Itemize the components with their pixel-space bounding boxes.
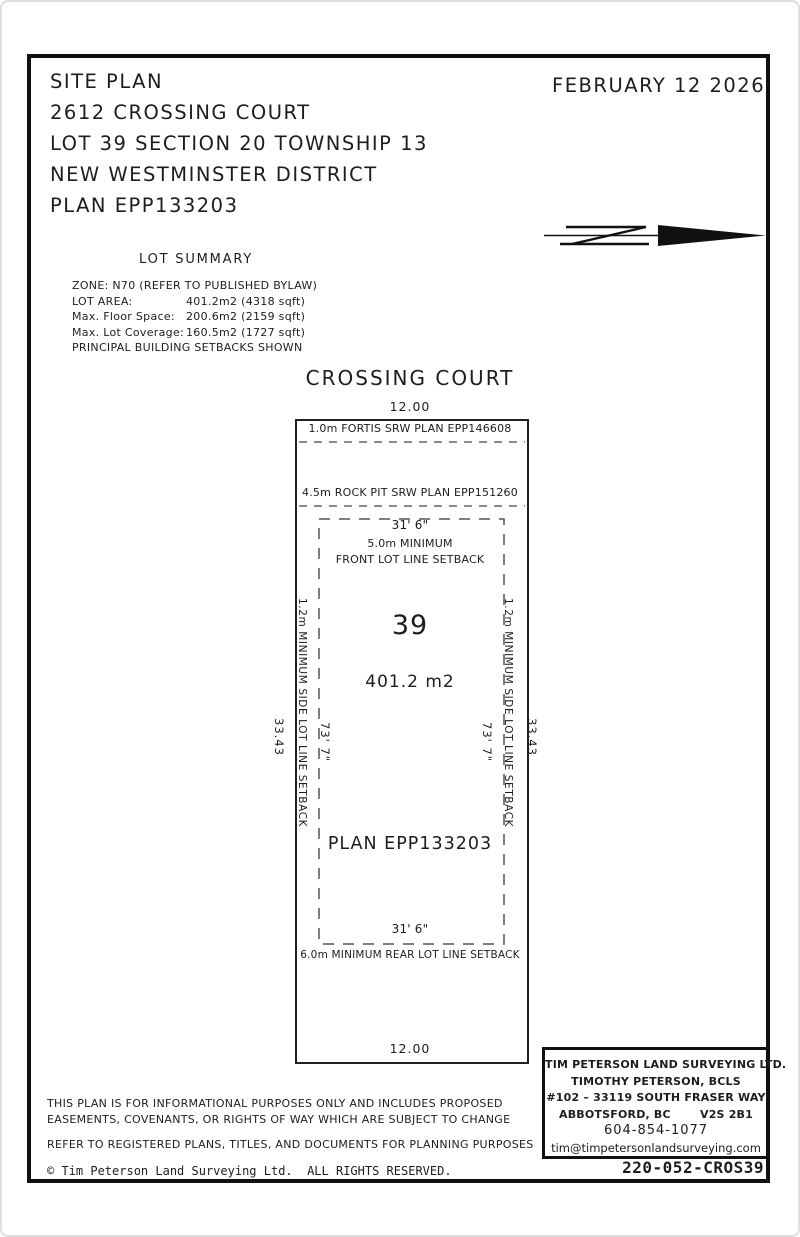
rear-setback-width: 31' 6" (295, 922, 525, 936)
floor-space-value: 200.6m2 (2159 sqft) (186, 310, 305, 323)
front-setback-label-line1: 5.0m MINIMUM (295, 537, 525, 550)
right-setback-depth: 73' 7" (480, 722, 494, 762)
lot-area-label: LOT AREA: (72, 294, 186, 310)
surveyor-postal: V2S 2B1 (700, 1107, 753, 1124)
disclaimer-line1: THIS PLAN IS FOR INFORMATIONAL PURPOSES … (47, 1096, 534, 1112)
left-setback-depth: 73' 7" (318, 722, 332, 762)
lot-summary: ZONE: N70 (REFER TO PUBLISHED BYLAW) LOT… (72, 278, 317, 356)
lot-summary-row: LOT AREA:401.2m2 (4318 sqft) (72, 294, 317, 310)
fortis-srw-label: 1.0m FORTIS SRW PLAN EPP146608 (295, 422, 525, 435)
disclaimer-line3: REFER TO REGISTERED PLANS, TITLES, AND D… (47, 1137, 534, 1153)
lot-coverage-label: Max. Lot Coverage: (72, 325, 186, 341)
lot-summary-row: Max. Floor Space:200.6m2 (2159 sqft) (72, 309, 317, 325)
lot-area-value: 401.2m2 (4318 sqft) (186, 295, 305, 308)
surveyor-info-box: TIM PETERSON LAND SURVEYING LTD. TIMOTHY… (542, 1047, 770, 1159)
address-line: 2612 CROSSING COURT (50, 97, 428, 128)
site-plan-page: SITE PLAN 2612 CROSSING COURT LOT 39 SEC… (0, 0, 800, 1237)
surveyor-company: TIM PETERSON LAND SURVEYING LTD. (545, 1057, 767, 1074)
lot-summary-row: Max. Lot Coverage:160.5m2 (1727 sqft) (72, 325, 317, 341)
floor-space-label: Max. Floor Space: (72, 309, 186, 325)
front-setback-label-line2: FRONT LOT LINE SETBACK (295, 553, 525, 566)
surveyor-city-postal: ABBOTSFORD, BC V2S 2B1 (545, 1107, 767, 1124)
page-title: SITE PLAN (50, 66, 428, 97)
surveyor-email: tim@timpetersonlandsurveying.com (545, 1140, 767, 1157)
lot-coverage-value: 160.5m2 (1727 sqft) (186, 326, 305, 339)
front-setback-width: 31' 6" (295, 518, 525, 532)
left-side-dimension: 33.43 (272, 718, 286, 756)
lot-summary-heading: LOT SUMMARY (139, 252, 253, 267)
left-side-setback-label: 1.2m MINIMUM SIDE LOT LINE SETBACK (296, 598, 308, 827)
plan-date: FEBRUARY 12 2026 (552, 74, 765, 97)
surveyor-address: #102 – 33119 SOUTH FRASER WAY (545, 1090, 767, 1107)
title-block: SITE PLAN 2612 CROSSING COURT LOT 39 SEC… (50, 66, 428, 221)
disclaimer: THIS PLAN IS FOR INFORMATIONAL PURPOSES … (47, 1096, 534, 1153)
lot-number: 39 (295, 610, 525, 641)
surveyor-city: ABBOTSFORD, BC (559, 1107, 671, 1124)
north-arrow-icon (536, 214, 768, 256)
legal-lot-line: LOT 39 SECTION 20 TOWNSHIP 13 (50, 128, 428, 159)
right-side-dimension: 33.43 (525, 718, 539, 756)
rock-pit-srw-label: 4.5m ROCK PIT SRW PLAN EPP151260 (295, 486, 525, 499)
copyright-notice: © Tim Peterson Land Surveying Ltd. ALL R… (47, 1164, 452, 1178)
surveyor-name: TIMOTHY PETERSON, BCLS (545, 1074, 767, 1091)
surveyor-phone: 604-854-1077 (545, 1123, 767, 1140)
lot-area: 401.2 m2 (295, 672, 525, 692)
rear-lot-dimension: 12.00 (295, 1041, 525, 1056)
right-side-setback-label: 1.2m MINIMUM SIDE LOT LINE SETBACK (502, 598, 514, 827)
drawing-reference-number: 220-052-CROS39 (622, 1158, 764, 1177)
plan-line: PLAN EPP133203 (50, 190, 428, 221)
front-lot-dimension: 12.00 (295, 399, 525, 414)
plan-number: PLAN EPP133203 (295, 834, 525, 854)
district-line: NEW WESTMINSTER DISTRICT (50, 159, 428, 190)
disclaimer-line2: EASEMENTS, COVENANTS, OR RIGHTS OF WAY W… (47, 1112, 534, 1128)
building-setback-outline (319, 519, 504, 944)
setbacks-shown-note: PRINCIPAL BUILDING SETBACKS SHOWN (72, 340, 317, 356)
rear-setback-label: 6.0m MINIMUM REAR LOT LINE SETBACK (295, 949, 525, 961)
zone-line: ZONE: N70 (REFER TO PUBLISHED BYLAW) (72, 278, 317, 294)
street-name: CROSSING COURT (295, 366, 525, 390)
